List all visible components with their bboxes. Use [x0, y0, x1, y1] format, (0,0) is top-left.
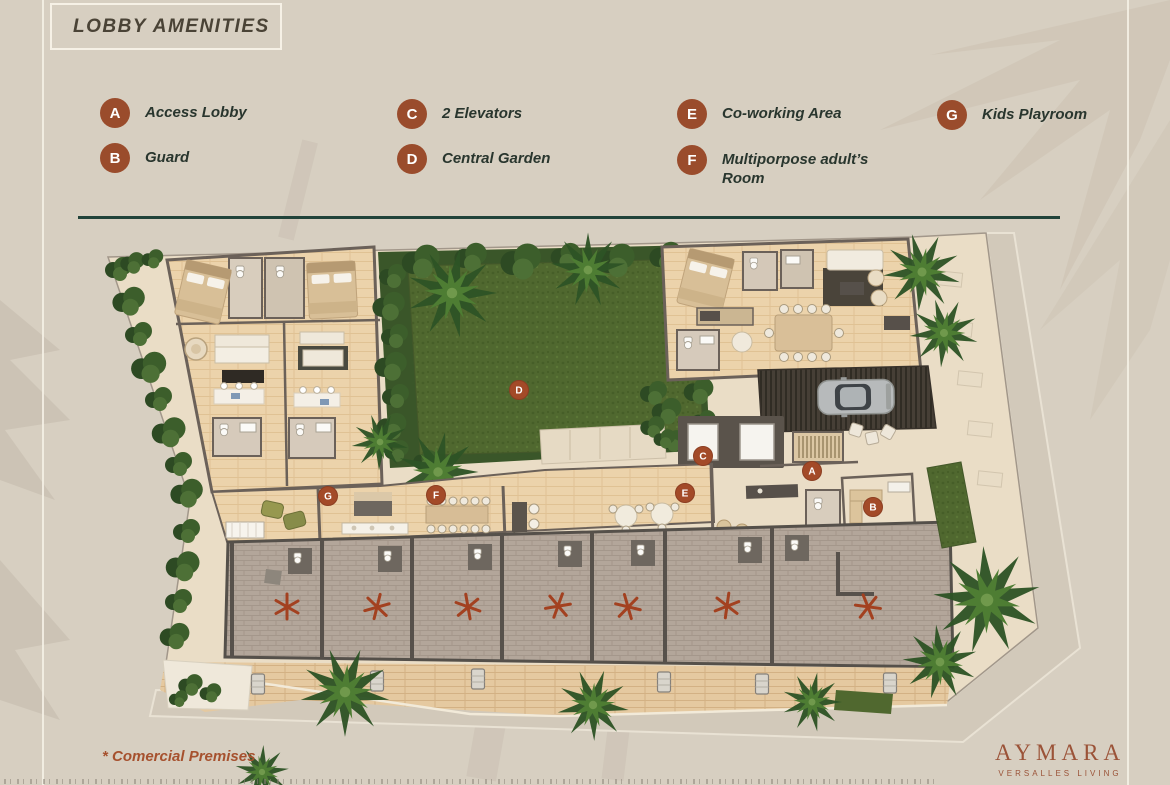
- legend-item-access-lobby: A Access Lobby: [100, 98, 247, 128]
- long-table: [426, 506, 488, 523]
- plan-marker-a: A: [803, 462, 822, 481]
- legend-item-multipurpose: F Multiporpose adult’s Room: [677, 145, 895, 188]
- sofa: [215, 335, 269, 347]
- legend-badge-g: G: [937, 100, 967, 130]
- badge-letter: F: [687, 152, 696, 169]
- right-border-rule: [1127, 0, 1129, 785]
- brand-name: AYMARA: [988, 740, 1132, 766]
- brand-block: AYMARA VERSALLES LIVING: [988, 740, 1132, 778]
- bathroom: [743, 252, 777, 290]
- title-box: LOBBY AMENITIES: [50, 3, 282, 50]
- clipped-caption-fragment: [4, 779, 934, 784]
- legend-label: Guard: [145, 143, 189, 167]
- bed: [307, 261, 358, 319]
- plan-marker-f: F: [427, 486, 446, 505]
- commercial-row: [225, 522, 953, 667]
- palm-shadow-left: [0, 300, 70, 720]
- page-title: LOBBY AMENITIES: [73, 16, 270, 38]
- legend-badge-d: D: [397, 144, 427, 174]
- kitchen-counter: [294, 393, 340, 407]
- elevators: [678, 416, 784, 468]
- badge-letter: D: [407, 151, 418, 168]
- legend-label: Co-working Area: [722, 99, 841, 123]
- legend-badge-a: A: [100, 98, 130, 128]
- badge-letter: C: [407, 106, 418, 123]
- section-divider: [78, 216, 1060, 219]
- plan-marker-g: G: [319, 487, 338, 506]
- svg-text:C: C: [699, 452, 706, 463]
- plan-marker-b: B: [864, 498, 883, 517]
- badge-letter: B: [110, 150, 121, 167]
- left-border-rule: [42, 0, 44, 785]
- sofa: [827, 250, 883, 270]
- round-table: [732, 332, 752, 352]
- legend-label: Access Lobby: [145, 98, 247, 122]
- svg-text:D: D: [515, 386, 522, 397]
- badge-letter: E: [687, 106, 697, 123]
- svg-text:B: B: [869, 503, 876, 514]
- crate: [264, 569, 282, 585]
- kitchen-island: [840, 282, 864, 295]
- legend-item-guard: B Guard: [100, 143, 189, 173]
- legend-label: 2 Elevators: [442, 99, 522, 123]
- brand-tagline: VERSALLES LIVING: [988, 769, 1132, 778]
- legend-label: Kids Playroom: [982, 100, 1087, 124]
- legend-item-central-garden: D Central Garden: [397, 144, 550, 174]
- driveway: [758, 366, 936, 432]
- legend-badge-e: E: [677, 99, 707, 129]
- commercial-premises-footnote: * Comercial Premises: [102, 748, 255, 765]
- legend-item-kids-playroom: G Kids Playroom: [937, 100, 1087, 130]
- plan-marker-e: E: [676, 484, 695, 503]
- svg-text:E: E: [682, 489, 689, 500]
- legend-badge-b: B: [100, 143, 130, 173]
- badge-letter: G: [946, 107, 958, 124]
- plan-marker-c: C: [694, 447, 713, 466]
- car: [818, 376, 895, 417]
- reception-counter: [746, 484, 798, 499]
- brochure-page: { "colors": { "background": "#d7cfc1", "…: [0, 0, 1170, 785]
- legend-label: Multiporpose adult’s Room: [722, 145, 890, 188]
- desk: [512, 502, 527, 532]
- apartment-right: [662, 239, 921, 380]
- tv-console: [222, 370, 264, 383]
- svg-text:F: F: [433, 491, 439, 502]
- legend-item-coworking: E Co-working Area: [677, 99, 841, 129]
- svg-text:A: A: [808, 467, 815, 478]
- wall-stub: [884, 316, 910, 330]
- sofa: [300, 332, 344, 344]
- svg-text:G: G: [324, 492, 332, 503]
- badge-letter: A: [110, 105, 121, 122]
- legend-label: Central Garden: [442, 144, 550, 168]
- round-table: [615, 505, 637, 527]
- elevator-cab: [740, 424, 774, 460]
- dining-table: [775, 315, 832, 351]
- legend-item-elevators: C 2 Elevators: [397, 99, 522, 129]
- legend-badge-c: C: [397, 99, 427, 129]
- plan-marker-d: D: [510, 381, 529, 400]
- legend-badge-f: F: [677, 145, 707, 175]
